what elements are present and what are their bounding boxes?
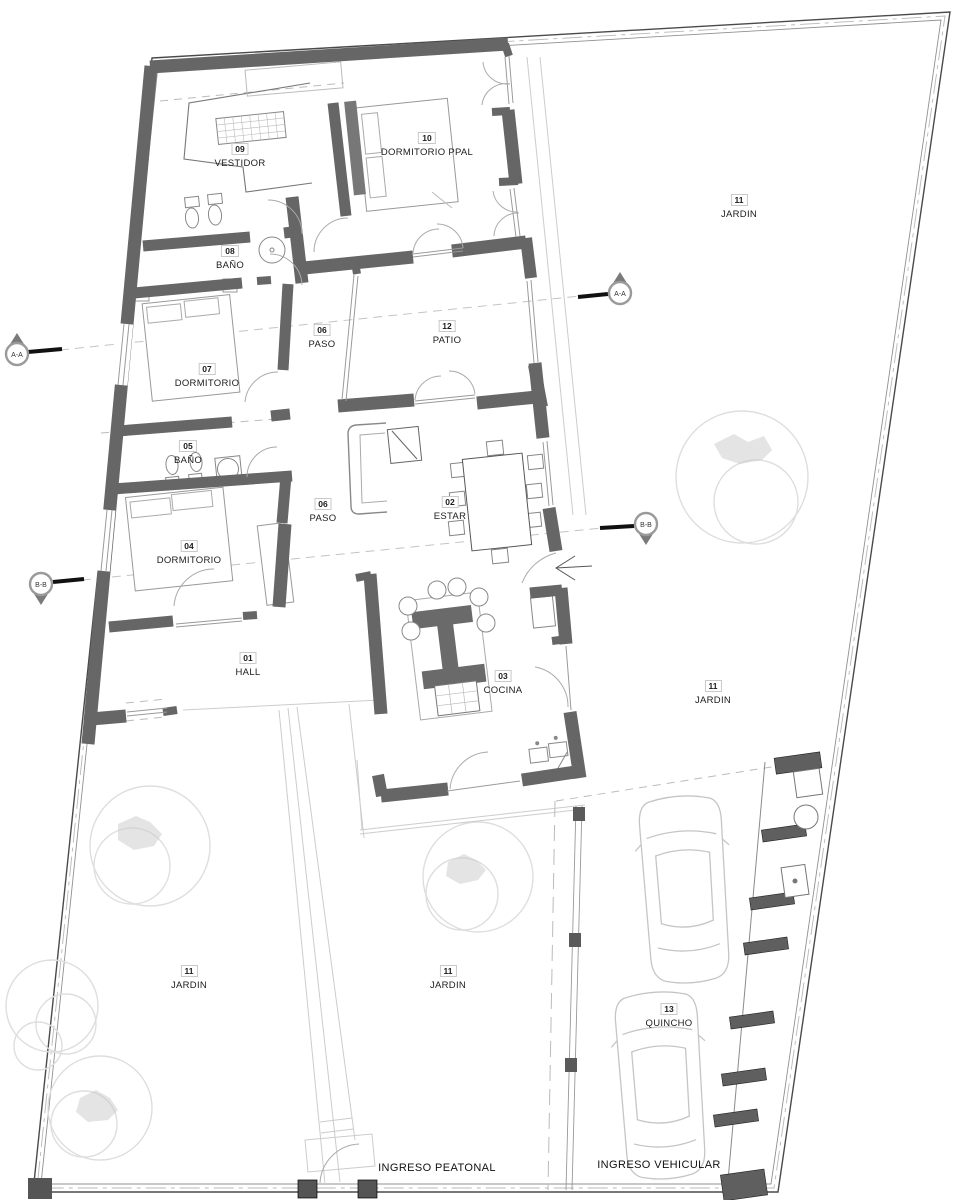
room-label-dormitorio-04: 04DORMITORIO xyxy=(157,535,222,567)
room-label-vestidor: 09VESTIDOR xyxy=(215,138,266,170)
garden-fence xyxy=(565,806,585,1190)
svg-text:B-B: B-B xyxy=(640,522,652,529)
kitchen-sink xyxy=(528,735,570,772)
room-label-patio: 12PATIO xyxy=(433,315,462,347)
dining-table xyxy=(462,453,531,551)
room-label-jardin-ne: 11JARDIN xyxy=(721,189,757,221)
door-arcs xyxy=(174,62,592,1183)
quincho-sink xyxy=(793,768,822,797)
room-label-jardin-sw: 11JARDIN xyxy=(171,960,207,992)
kitchen-island xyxy=(406,592,492,720)
room-label-paso-top: 06PASO xyxy=(309,319,336,351)
sofa xyxy=(348,423,387,514)
quincho-strip xyxy=(713,752,822,1200)
room-label-dormitorio-ppal: 10DORMITORIO PPAL xyxy=(381,127,473,159)
room-label-jardin-e: 11JARDIN xyxy=(695,675,731,707)
svg-text:A-A: A-A xyxy=(11,352,23,359)
section-marker-bb-right: B-B xyxy=(600,513,657,545)
svg-text:A-A: A-A xyxy=(614,291,626,298)
room-label-paso-bottom: 06PASO xyxy=(310,493,337,525)
room-label-hall: 01HALL xyxy=(236,647,261,679)
room-label-bano-05: 05BAÑO xyxy=(174,435,202,467)
entry-arrow xyxy=(556,556,592,580)
room-label-cocina: 03COCINA xyxy=(484,665,523,697)
section-marker-bb-left: B-B xyxy=(30,573,84,605)
svg-text:B-B: B-B xyxy=(35,582,47,589)
site-lines xyxy=(183,57,586,1184)
room-label-bano-08: 08BAÑO xyxy=(216,240,244,272)
section-marker-aa-right: A-A xyxy=(578,272,631,304)
room-label-quincho: 13QUINCHO xyxy=(646,998,693,1030)
room-label-estar: 02ESTAR xyxy=(434,491,466,523)
plan-drawing: A-A A-A B-B B-B xyxy=(0,0,966,1200)
car-1 xyxy=(632,793,739,986)
room-label-jardin-s: 11JARDIN xyxy=(430,960,466,992)
floor-plan: A-A A-A B-B B-B 09VESTIDOR 10DORMITORIO … xyxy=(0,0,966,1200)
section-marker-aa-left: A-A xyxy=(6,333,62,365)
fridge xyxy=(530,596,555,628)
plot-boundary xyxy=(33,12,950,1192)
room-label-dormitorio-07: 07DORMITORIO xyxy=(175,358,240,390)
quincho-grill xyxy=(794,805,818,829)
label-ingreso-vehicular: INGRESO VEHICULAR xyxy=(597,1159,721,1171)
label-ingreso-peatonal: INGRESO PEATONAL xyxy=(378,1162,496,1174)
